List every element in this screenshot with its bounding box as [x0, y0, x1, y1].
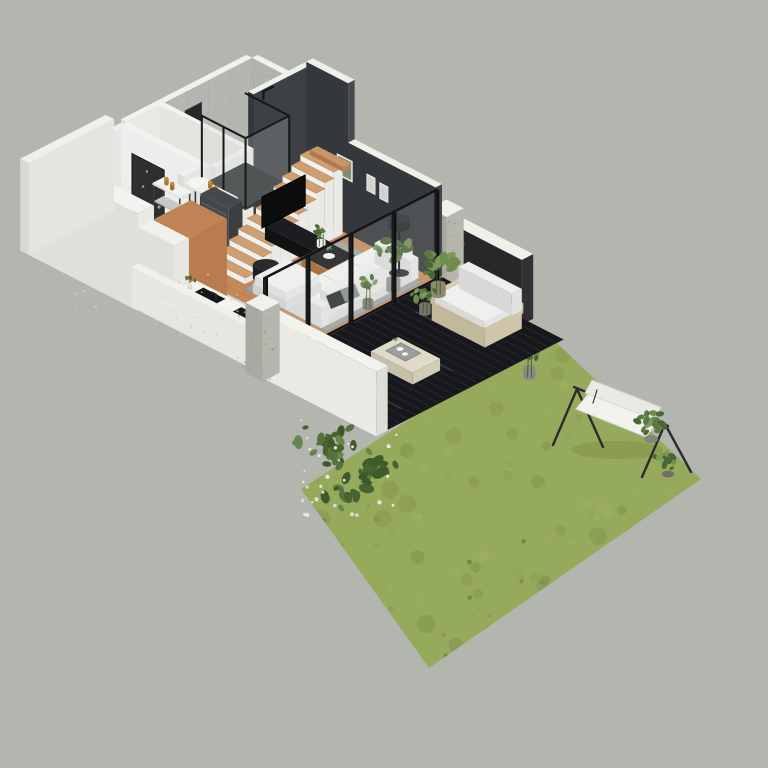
vanity-jar-1 [208, 181, 212, 189]
swing-shadow [571, 441, 663, 459]
glass-post-2 [392, 211, 397, 304]
hall-console-jar-2 [170, 182, 174, 191]
hall-console-jar-1 [164, 177, 168, 186]
swing-plant-pot-2 [662, 471, 674, 478]
tray-cup-1 [397, 347, 404, 351]
floorplan-render [0, 0, 768, 768]
counter-herb-pot [188, 283, 192, 290]
entry-door-handle [157, 205, 160, 208]
swing-plant-pot-1 [644, 435, 658, 443]
glass-post-3 [349, 233, 354, 326]
stone-pillar-left [246, 294, 280, 382]
tray-cup-2 [402, 352, 408, 356]
floorplan-canvas [0, 0, 768, 768]
